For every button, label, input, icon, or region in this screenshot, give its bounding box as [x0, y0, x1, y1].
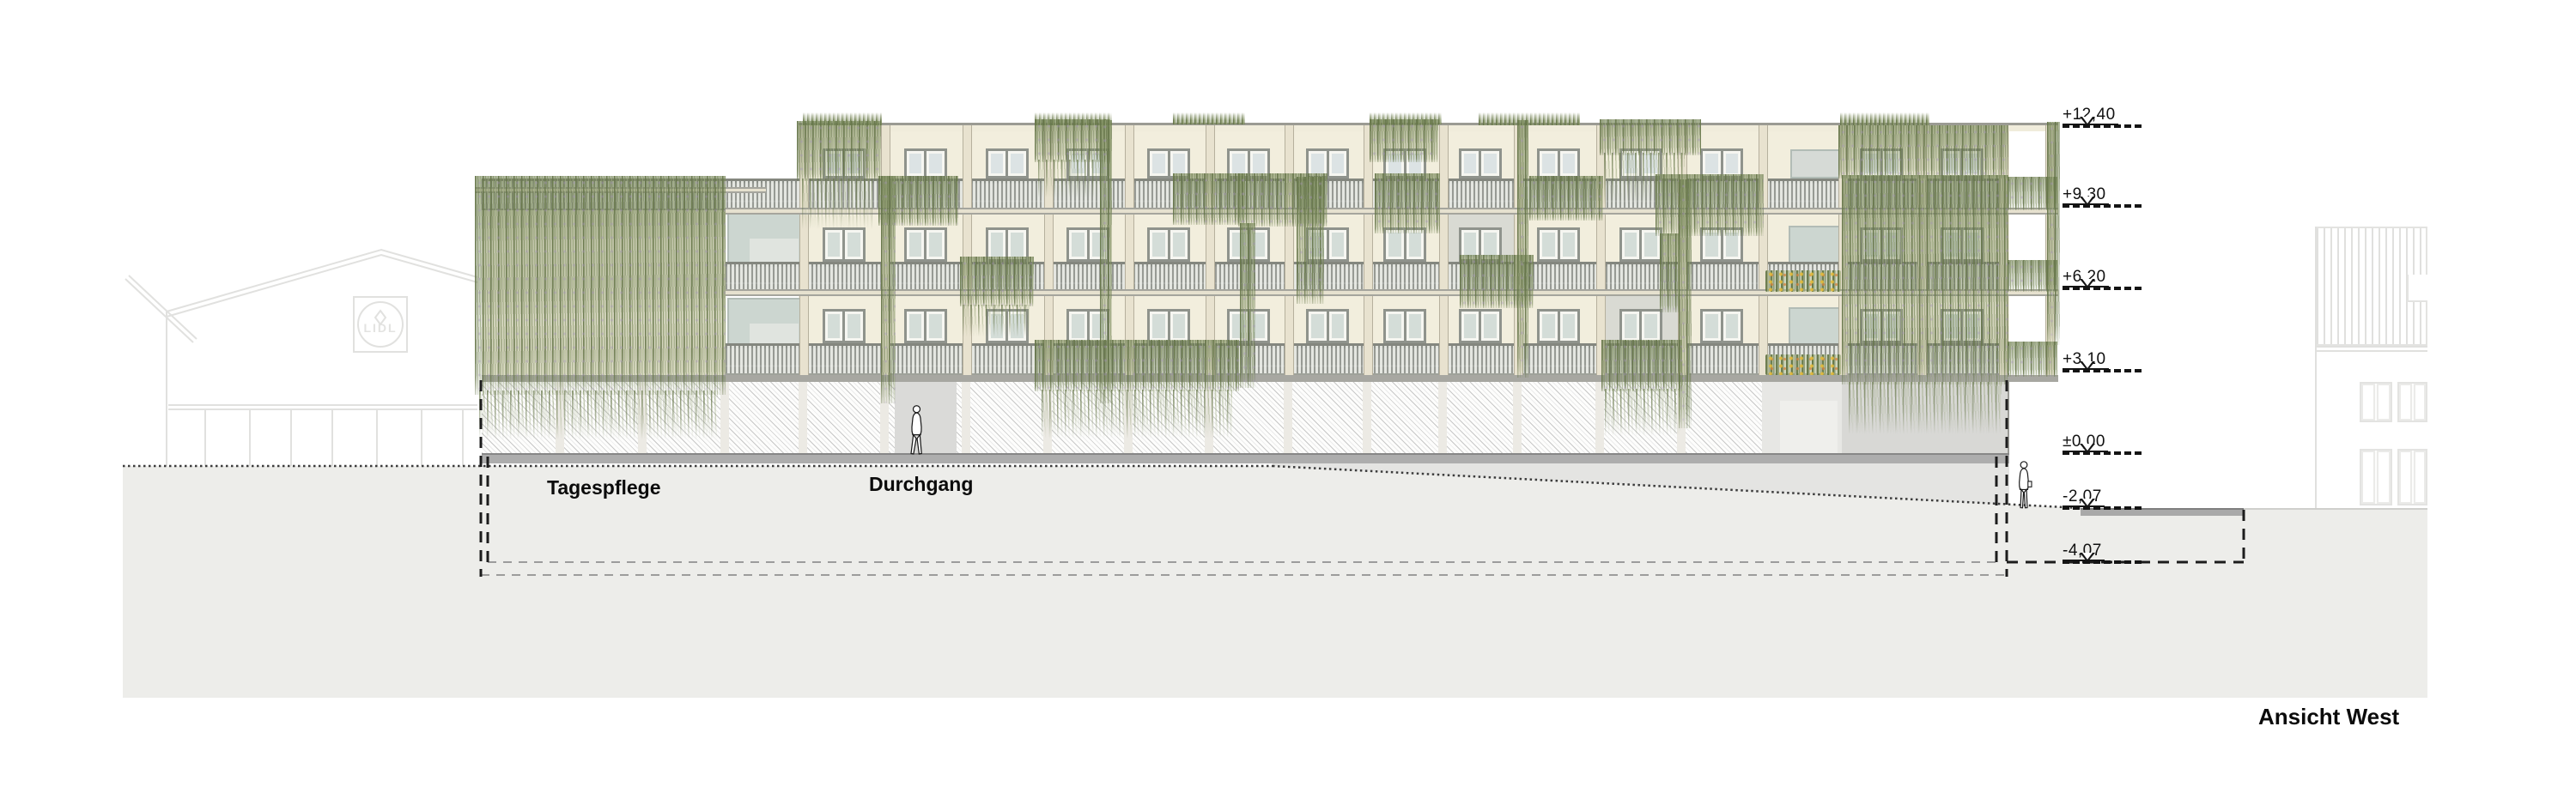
- elevation-canvas: LIDL: [0, 0, 2576, 805]
- label-durchgang: Durchgang: [869, 475, 973, 494]
- neighbor-window-sash: [2399, 451, 2412, 504]
- window-sash: [1703, 312, 1721, 341]
- hanging-plants-vine: [1240, 223, 1255, 388]
- level-marker-triangle-icon: [2080, 444, 2095, 453]
- window-sash: [927, 230, 945, 259]
- window-sash: [1329, 230, 1347, 259]
- hanging-plants-curtain: [1035, 119, 1110, 162]
- level-marker: -2,07: [2063, 488, 2148, 512]
- window-sash: [1723, 151, 1741, 176]
- window-sash: [1008, 230, 1026, 259]
- window-sash: [1622, 230, 1640, 259]
- window-sash: [1560, 312, 1578, 341]
- apartment-window-og2: [1147, 227, 1190, 262]
- level-marker-dashline: [2063, 560, 2142, 564]
- apartment-window-og1: [1700, 309, 1743, 343]
- hanging-plants-vine: [1297, 177, 1324, 304]
- window-sash: [1560, 151, 1578, 176]
- apartment-window-og1: [1306, 309, 1349, 343]
- facade-column: [963, 125, 972, 382]
- person-figure-icon: [2014, 461, 2033, 510]
- apartment-window-og3: [1537, 148, 1580, 179]
- apartment-window-og3: [1459, 148, 1502, 179]
- window-sash: [1170, 312, 1188, 341]
- level-marker-dashline: [2063, 204, 2142, 208]
- window-sash: [1622, 312, 1640, 341]
- hanging-plants-curtain: [960, 257, 1034, 306]
- eg-column-strip: [1595, 382, 1604, 453]
- hanging-plants-vine: [881, 176, 896, 403]
- window-sash: [1560, 230, 1578, 259]
- window-sash: [1461, 151, 1479, 176]
- neighbor-band-line: [2315, 346, 2427, 348]
- level-marker: ±0,00: [2063, 433, 2148, 457]
- hanging-plants-curtain: [1601, 340, 1682, 391]
- window-sash: [1540, 151, 1558, 176]
- balcony-flower-box: [1765, 270, 1841, 292]
- window-sash: [1461, 312, 1479, 341]
- lidl-facade-mullions: [205, 410, 463, 467]
- lidl-leanto-roof: [125, 275, 197, 342]
- walkway-slab: [482, 453, 2009, 463]
- apartment-window-og2: [823, 227, 866, 262]
- neighbor-window: [2360, 449, 2392, 505]
- window-sash: [1406, 312, 1425, 341]
- window-sash: [1481, 151, 1499, 176]
- window-sash: [1170, 151, 1188, 176]
- facade-column: [1364, 125, 1373, 382]
- window-sash: [1150, 151, 1168, 176]
- hanging-plants-curtain: [1529, 176, 1603, 221]
- person-walking-icon: [907, 405, 927, 456]
- window-sash: [1540, 230, 1558, 259]
- level-marker-dashline: [2063, 451, 2142, 455]
- level-marker-dashline: [2063, 506, 2142, 510]
- level-marker-triangle-icon: [2080, 553, 2095, 562]
- drawing-title: Ansicht West: [2258, 705, 2399, 728]
- window-sash: [1309, 312, 1327, 341]
- hanging-plants-curtain: [797, 121, 881, 181]
- window-sash: [1069, 230, 1087, 259]
- neighbor-window-sash: [2361, 384, 2375, 421]
- level-marker: +3,10: [2063, 351, 2148, 375]
- window-sash: [1008, 151, 1026, 176]
- eg-column-strip: [799, 382, 807, 453]
- apartment-window-og1: [1147, 309, 1190, 343]
- neighbor-slat-notch: [2407, 275, 2427, 302]
- apartment-window-og2: [1537, 227, 1580, 262]
- hanging-plants-vine: [2047, 122, 2060, 345]
- neighbor-window-sash: [2414, 384, 2427, 421]
- window-sash: [1329, 151, 1347, 176]
- window-sash: [1150, 312, 1168, 341]
- window-sash: [825, 230, 843, 259]
- facade-column: [1759, 125, 1768, 382]
- neighbor-band-line2: [2315, 350, 2427, 352]
- eg-column-strip: [1284, 382, 1292, 453]
- hanging-plants-fringe: [963, 305, 1030, 337]
- window-sash: [1309, 151, 1327, 176]
- neighbor-window: [2397, 449, 2427, 505]
- apartment-window-og1: [1459, 309, 1502, 343]
- hanging-plants-curtain: [1838, 125, 2008, 179]
- lidl-facade-band: [168, 405, 477, 409]
- neighbor-window-sash: [2377, 451, 2391, 504]
- hanging-plants-curtain: [1656, 174, 1764, 236]
- neighbor-window-sash: [2414, 451, 2427, 504]
- hanging-plants-tuft: [1173, 112, 1245, 124]
- level-marker-triangle-icon: [2080, 117, 2095, 126]
- level-marker-dashline: [2063, 287, 2142, 290]
- window-sash: [1250, 151, 1268, 176]
- lidl-gable-roof: [167, 250, 477, 317]
- hanging-plants-fringe: [479, 390, 718, 440]
- apartment-window-og2: [904, 227, 947, 262]
- balcony-flower-box: [1765, 354, 1841, 375]
- neighbor-left-edge: [2315, 227, 2317, 509]
- apartment-window-og1: [1537, 309, 1580, 343]
- hanging-plants-tuft: [1840, 112, 1929, 125]
- window-sash: [927, 312, 945, 341]
- window-sash: [1481, 312, 1499, 341]
- level-marker-triangle-icon: [2080, 197, 2095, 206]
- window-sash: [1150, 230, 1168, 259]
- window-sash: [1069, 312, 1087, 341]
- apartment-window-og1: [1619, 309, 1662, 343]
- window-sash: [1703, 151, 1721, 176]
- eg-column-strip: [1513, 382, 1522, 453]
- eg-stair-door: [1780, 401, 1838, 453]
- window-sash: [1540, 312, 1558, 341]
- stair-bay2-glass-3og: [1790, 149, 1840, 179]
- hanging-plants-vine: [1517, 120, 1528, 378]
- person-standing-icon: [2014, 461, 2033, 510]
- window-sash: [927, 151, 945, 176]
- hanging-plants-vine: [1660, 233, 1679, 312]
- level-marker: -4,07: [2063, 542, 2148, 566]
- facade-column: [1439, 125, 1449, 382]
- hanging-plants-curtain: [1842, 175, 2008, 384]
- hanging-plants-fringe: [1042, 390, 1232, 439]
- hanging-plants-tuft: [1479, 112, 1580, 125]
- window-sash: [988, 230, 1006, 259]
- apartment-window-og1: [1383, 309, 1426, 343]
- hanging-plants-curtain: [1173, 173, 1245, 225]
- level-marker-dashline: [2063, 369, 2142, 372]
- facade-column: [1285, 125, 1294, 382]
- level-marker: +12,40: [2063, 106, 2148, 130]
- window-sash: [907, 312, 925, 341]
- hanging-plants-fringe: [1849, 382, 2002, 435]
- window-sash: [1642, 312, 1660, 341]
- window-sash: [1170, 230, 1188, 259]
- window-sash: [825, 312, 843, 341]
- neighbor-window-sash: [2399, 384, 2412, 421]
- hanging-plants-fringe: [1038, 160, 1105, 198]
- level-marker-triangle-icon: [2080, 499, 2095, 508]
- person-figure-icon: [907, 405, 927, 456]
- window-sash: [1723, 312, 1741, 341]
- level-marker-triangle-icon: [2080, 361, 2095, 371]
- window-sash: [1406, 230, 1425, 259]
- apartment-window-og1: [823, 309, 866, 343]
- window-sash: [907, 151, 925, 176]
- neighbor-window: [2360, 382, 2392, 422]
- apartment-window-og3: [986, 148, 1029, 179]
- window-sash: [845, 312, 863, 341]
- level-marker-dashline: [2063, 124, 2142, 128]
- window-sash: [845, 230, 863, 259]
- window-sash: [1329, 312, 1347, 341]
- window-sash: [1386, 312, 1404, 341]
- window-sash: [1230, 151, 1248, 176]
- eg-column-strip: [1438, 382, 1447, 453]
- eg-column-strip: [962, 382, 970, 453]
- hanging-plants-curtain: [475, 176, 726, 395]
- neighbor-window-sash: [2377, 384, 2391, 421]
- lidl-logo-text: LIDL: [363, 321, 397, 335]
- eg-column-strip: [1363, 382, 1371, 453]
- hanging-plants-curtain: [1375, 173, 1440, 233]
- window-sash: [988, 151, 1006, 176]
- window-sash: [907, 230, 925, 259]
- apartment-window-og1: [904, 309, 947, 343]
- hanging-plants-curtain: [2008, 342, 2057, 377]
- hanging-plants-fringe: [1605, 389, 1680, 437]
- hanging-plants-fringe: [802, 179, 872, 230]
- apartment-window-og3: [904, 148, 947, 179]
- hanging-plants-curtain: [1035, 340, 1239, 391]
- label-tagespflege: Tagespflege: [547, 478, 661, 498]
- neighbor-window: [2397, 382, 2427, 422]
- level-marker: +9,30: [2063, 186, 2148, 210]
- neighbor-window-sash: [2361, 451, 2375, 504]
- level-marker-triangle-icon: [2080, 279, 2095, 288]
- hanging-plants-curtain: [1370, 119, 1438, 162]
- level-marker: +6,20: [2063, 269, 2148, 293]
- window-sash: [1386, 230, 1404, 259]
- hanging-plants-curtain: [1600, 119, 1701, 155]
